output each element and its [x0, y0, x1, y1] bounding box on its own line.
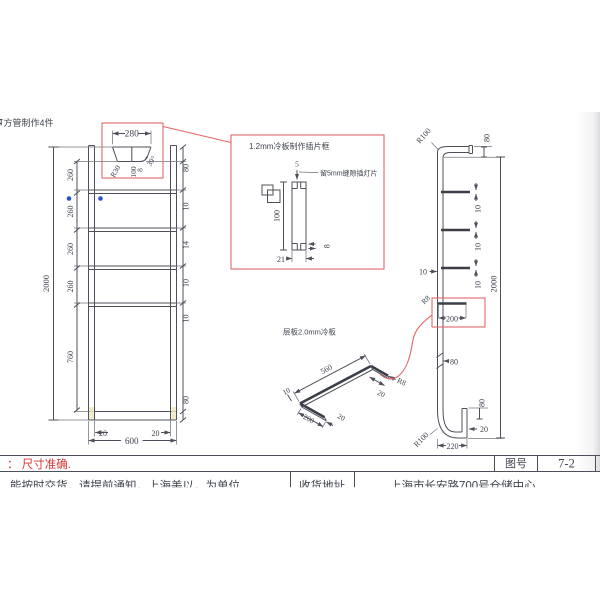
blue-dot-marker: [67, 196, 72, 201]
dim-8: 8: [323, 244, 332, 248]
red-connector-curve: [380, 315, 432, 379]
dim-line: [370, 377, 385, 386]
scan-tint-left: [89, 407, 94, 420]
dim-10-b: 10: [181, 279, 190, 287]
dim-10-left: 10: [419, 268, 427, 277]
frame-columns: [89, 146, 177, 421]
front-right-chain: 80 10 14 10 10 80: [180, 145, 190, 423]
scanned-drawing-page: 方管制作4件 280 R30 100 8 39° 260 2: [0, 0, 600, 600]
clipped-bottom-row: 能按时交货，请提前通知，上海美以，为单位 收货地址 上海市长安路700号仓储中心: [10, 472, 536, 493]
dim-220: 220: [447, 442, 459, 451]
top-note: 方管制作4件: [0, 117, 54, 128]
drawing-no-value: 7-2: [558, 457, 575, 471]
dim-r100-top: R100: [414, 126, 432, 145]
detail-title: 1.2mm冷板制作插片框: [249, 141, 329, 151]
scan-tint-right: [171, 407, 176, 420]
leader-line: [430, 429, 438, 435]
dim-2000: 2000: [41, 275, 51, 292]
dim-cap-width: 280: [125, 129, 140, 139]
shelf-title: 层板2.0mm冷板: [283, 327, 336, 337]
red-note: ： 尺寸准确.: [7, 457, 71, 471]
dim-760: 760: [66, 351, 75, 363]
leader-line: [299, 172, 319, 173]
dim-cap-lip: 8: [135, 168, 144, 172]
dim-260-3: 260: [66, 243, 75, 255]
detail-box: 1.2mm冷板制作插片框 5 留5mm缝隙插灯片 100 21 8: [231, 135, 384, 269]
bottom-note-right: 上海市长安路700号仓储中心: [390, 479, 536, 493]
bottom-note-left: 能按时交货，请提前通知，上海美以，为单位: [10, 479, 240, 493]
side-red-detail: R8 200: [419, 293, 485, 327]
dim-10-c: 10: [181, 315, 190, 323]
dim-r8-iso: R8: [396, 376, 408, 388]
dim-80-lip-line: [477, 408, 483, 419]
shelf-edges-thick: [300, 366, 388, 417]
technical-drawing-canvas: 方管制作4件 280 R30 100 8 39° 260 2: [0, 0, 600, 600]
red-detail-frame: [231, 135, 384, 269]
dim-20-iso-left: 20: [336, 412, 347, 424]
dim-100: 100: [273, 210, 282, 222]
dim-r100-bottom: R100: [412, 430, 431, 449]
extension-lines: [293, 354, 370, 402]
frame-shelf-lines: [89, 190, 177, 420]
page-edge-shadow: [576, 112, 600, 472]
blue-dot-marker: [98, 196, 103, 201]
dim-200: 200: [446, 315, 458, 324]
top-bend: [438, 146, 473, 163]
dim-20-left: 20: [99, 429, 107, 438]
cap-profile: [113, 147, 152, 162]
front-view: 280 R30 100 8 39° 260 260 260 260 760 20…: [41, 123, 231, 446]
extension-lines: [292, 251, 306, 262]
profile-slots: [292, 182, 306, 250]
drawing-no-label: 图号: [505, 457, 527, 470]
dim-14: 14: [181, 241, 190, 249]
dim-20-lip: 20: [480, 425, 488, 434]
dim-260-4: 260: [66, 281, 75, 293]
dim-arrow: [327, 422, 334, 426]
dim-80-mid: 80: [450, 358, 458, 367]
dim-10-1: 10: [473, 205, 482, 213]
side-view: R100 80 2000 10 10 10 10 R8 200: [412, 126, 505, 450]
title-block: ： 尺寸准确. 图号 7-2 能按时交货，请提前通知，上海美以，为单位 收货地址…: [0, 456, 600, 493]
dim-80-top: 80: [181, 164, 190, 172]
side-stub-gaps: 10 10 10: [473, 183, 482, 289]
slot-note: 留5mm缝隙插灯片: [320, 169, 378, 178]
leader-line: [432, 143, 439, 151]
dim-80-bottom: 80: [181, 396, 190, 404]
dim-80-lip: 80: [478, 399, 487, 407]
dim-slot-5: 5: [295, 160, 299, 169]
clip-piece-b: [268, 190, 281, 203]
dim-80-top-line: [481, 147, 487, 157]
dim-10-a: 10: [181, 203, 190, 211]
front-left-chain: 260 260 260 260 760: [66, 159, 103, 413]
side-tube: [438, 146, 473, 439]
profile-outline: [292, 182, 306, 250]
extension-lines: [444, 147, 503, 158]
dim-20-iso-right: 20: [376, 388, 387, 400]
dim-260-2: 260: [66, 206, 75, 218]
red-leader-line: [163, 127, 231, 143]
dim-10-2: 10: [473, 243, 482, 251]
clipped-glyph-fragment: [0, 120, 3, 126]
bottom-bend-lip: [438, 409, 468, 439]
shelf-isometric: 层板2.0mm冷板 560 10 200 20 20 R8: [281, 315, 432, 428]
top-note-text: 方管制作4件: [4, 117, 54, 128]
dim-600: 600: [125, 436, 139, 446]
dim-10-3: 10: [473, 281, 482, 289]
dim-cap-angle: 39°: [145, 154, 158, 168]
dim-20-right: 20: [152, 429, 160, 438]
dim-r8-side: R8: [419, 293, 432, 306]
front-overall-height: 2000: [41, 147, 59, 420]
tick-mark: [288, 395, 292, 402]
dim-10-iso: 10: [281, 385, 292, 397]
dim-cap-radius: R30: [108, 163, 122, 179]
dim-80-top: 80: [483, 134, 492, 142]
dim-260-1: 260: [66, 169, 75, 181]
front-bottom-dims: 20 20 600: [89, 421, 177, 446]
front-cap-detail: 280 R30 100 8 39°: [102, 123, 231, 179]
bottom-note-mid: 收货地址: [299, 479, 345, 493]
dim-2000-line: [496, 157, 505, 438]
tube-body: [438, 162, 444, 410]
dim-2000-side: 2000: [489, 276, 499, 293]
dim-21: 21: [277, 255, 285, 264]
